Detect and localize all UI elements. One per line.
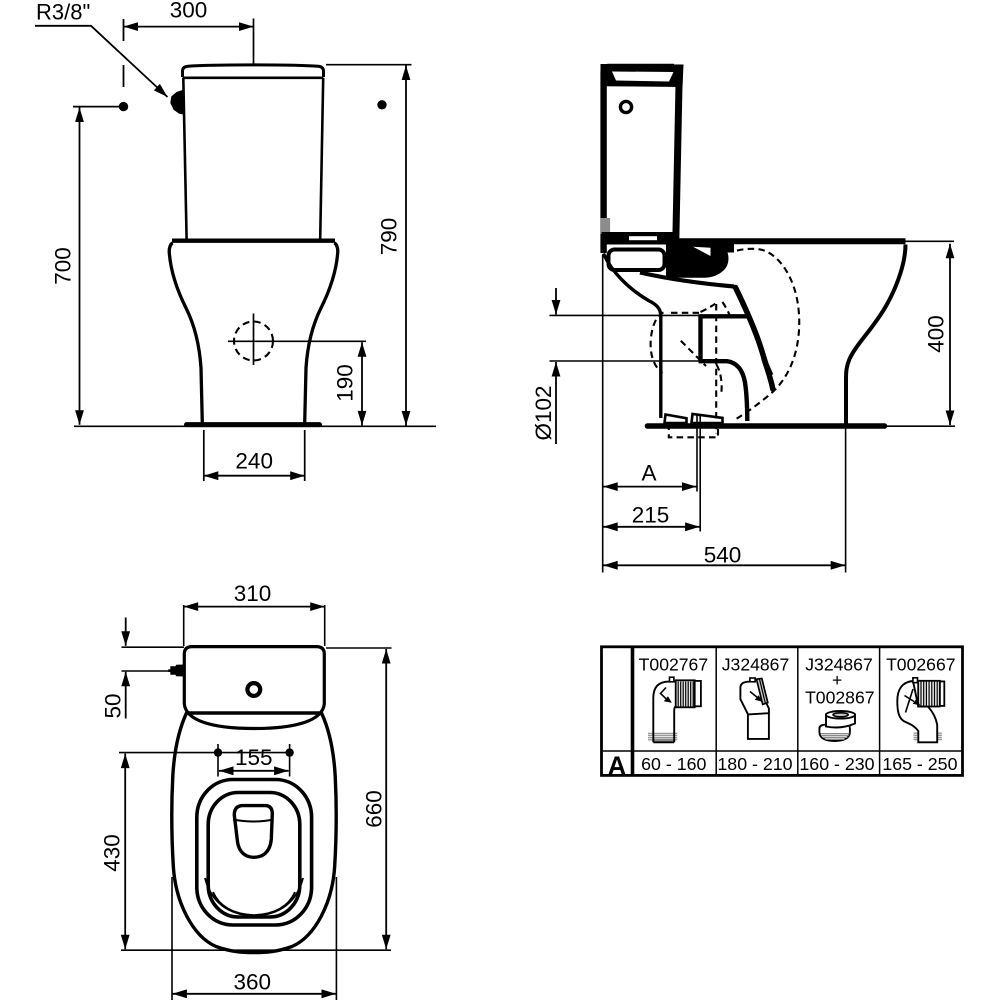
svg-text:310: 310 bbox=[234, 581, 272, 606]
svg-text:190: 190 bbox=[333, 364, 358, 402]
svg-text:240: 240 bbox=[235, 448, 273, 473]
svg-text:T002667: T002667 bbox=[886, 655, 955, 675]
svg-text:300: 300 bbox=[170, 0, 208, 22]
svg-text:160 - 230: 160 - 230 bbox=[799, 754, 874, 774]
svg-text:50: 50 bbox=[101, 693, 126, 718]
svg-text:J324867: J324867 bbox=[722, 655, 790, 675]
svg-text:Ø102: Ø102 bbox=[531, 385, 556, 440]
svg-text:700: 700 bbox=[51, 247, 76, 285]
svg-text:430: 430 bbox=[100, 834, 125, 872]
svg-text:360: 360 bbox=[234, 970, 272, 995]
svg-text:A: A bbox=[641, 461, 656, 486]
svg-text:180 - 210: 180 - 210 bbox=[717, 754, 792, 774]
svg-text:165 - 250: 165 - 250 bbox=[882, 754, 957, 774]
svg-text:A: A bbox=[608, 753, 626, 781]
svg-text:T002867: T002867 bbox=[805, 688, 874, 708]
svg-text:660: 660 bbox=[362, 790, 387, 828]
svg-text:215: 215 bbox=[632, 503, 670, 528]
svg-text:T002767: T002767 bbox=[639, 655, 708, 675]
svg-text:60 - 160: 60 - 160 bbox=[641, 754, 706, 774]
svg-text:790: 790 bbox=[377, 218, 402, 256]
svg-text:155: 155 bbox=[235, 745, 273, 770]
svg-text:400: 400 bbox=[924, 315, 949, 353]
svg-text:540: 540 bbox=[704, 543, 742, 568]
svg-text:R3/8": R3/8" bbox=[36, 0, 90, 25]
